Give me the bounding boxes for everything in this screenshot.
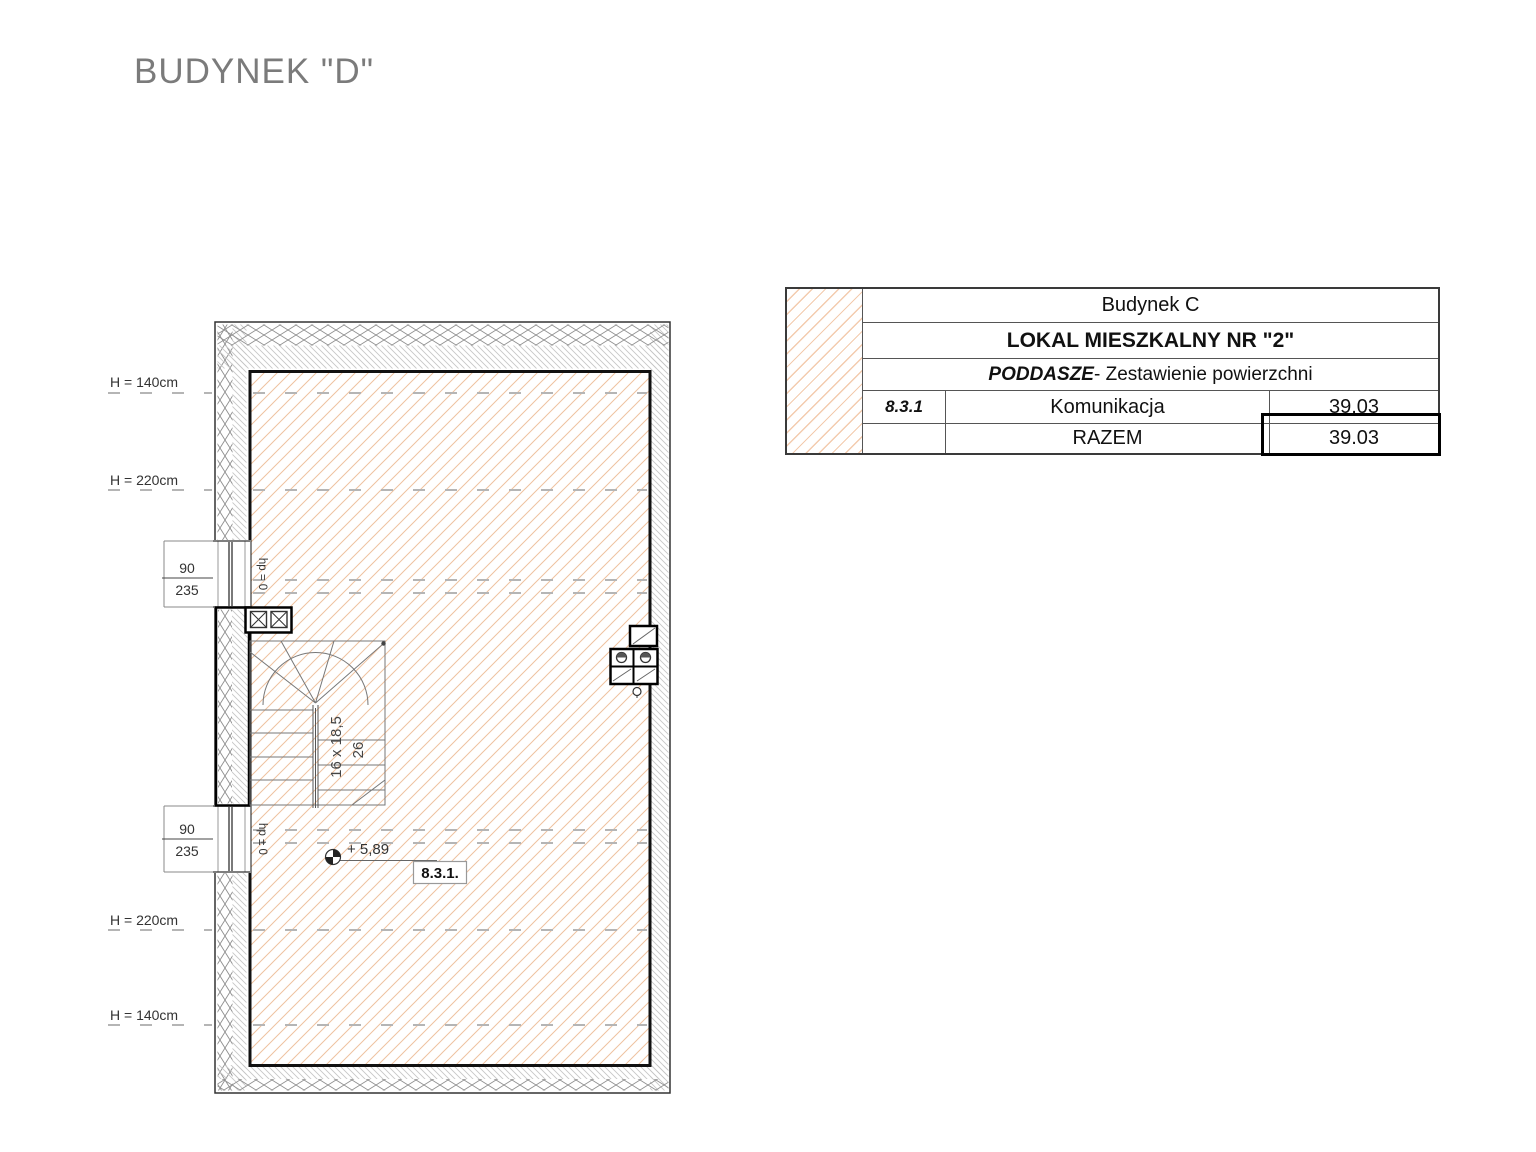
table-total-row: RAZEM 39.03 [863, 424, 1438, 453]
room-interior [250, 372, 650, 1066]
height-label-3: H = 220cm [110, 912, 178, 928]
height-label-4: H = 140cm [110, 1007, 178, 1023]
stair-width-label: 26 [350, 742, 367, 759]
room-no-cell: 8.3.1 [863, 391, 946, 423]
area-table: Budynek C LOKAL MIESZKALNY NR "2" PODDAS… [785, 287, 1440, 455]
unit-name: LOKAL MIESZKALNY NR "2" [1007, 329, 1295, 353]
drain-icon [633, 688, 641, 696]
height-label-2: H = 220cm [110, 472, 178, 488]
table-hatch-column [787, 289, 863, 453]
masonry-hatch-right [650, 325, 669, 1091]
insulation-hatch-top [218, 325, 669, 346]
floor-name: PODDASZE [988, 364, 1094, 386]
table-row: 8.3.1 Komunikacja 39,03 [863, 391, 1438, 424]
insulation-hatch-bottom [218, 1079, 669, 1091]
room-tag: 8.3.1. [414, 862, 467, 884]
total-no-cell [863, 424, 946, 453]
window-1-height-dim: 235 [175, 582, 199, 598]
table-building-row: Budynek C [863, 289, 1438, 323]
stair-riser-label: 16 x 18,5 [328, 716, 345, 778]
window-2-height-dim: 235 [175, 843, 199, 859]
floor-plan: H = 140cm H = 220cm H = 220cm H = 140cm … [0, 0, 1536, 1152]
wall-pier [216, 608, 249, 806]
room-area-cell: 39,03 [1270, 391, 1438, 423]
room-name-cell: Komunikacja [946, 391, 1270, 423]
window-2-sill-label: hp ± 0 [256, 823, 268, 855]
masonry-hatch-bottom [218, 1065, 669, 1079]
total-label-cell: RAZEM [946, 424, 1270, 453]
floor-suffix: - Zestawienie powierzchni [1094, 364, 1313, 386]
room-number: 8.3.1. [421, 865, 459, 882]
window-2-width-dim: 90 [179, 821, 195, 837]
total-area-cell: 39.03 [1270, 424, 1438, 453]
level-value: + 5,89 [347, 841, 389, 858]
window-1-sill-label: hp = 0 [256, 558, 268, 590]
table-floor-row: PODDASZE - Zestawienie powierzchni [863, 359, 1438, 391]
masonry-hatch-top [218, 346, 669, 369]
window-1-width-dim: 90 [179, 560, 195, 576]
table-unit-row: LOKAL MIESZKALNY NR "2" [863, 323, 1438, 359]
flue-box [246, 608, 292, 633]
building-name: Budynek C [1102, 294, 1200, 317]
height-label-1: H = 140cm [110, 374, 178, 390]
